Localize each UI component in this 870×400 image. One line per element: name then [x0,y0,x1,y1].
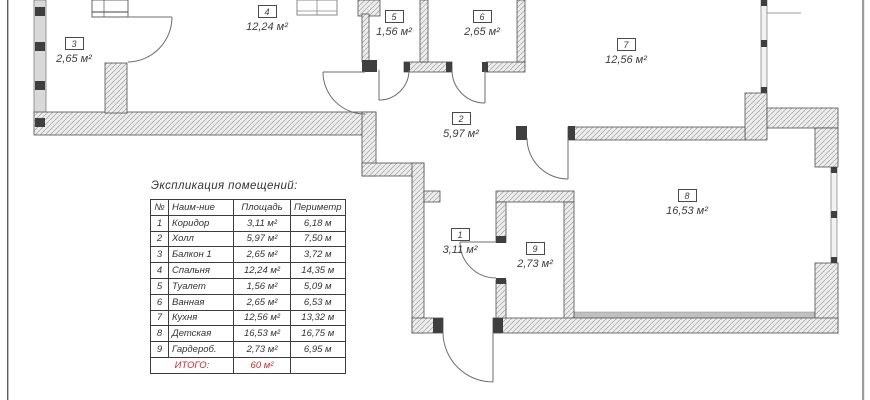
room-area-text: 1,56 м² [344,27,444,38]
cell-num: 4 [151,263,169,279]
room-label-3: 3 2,65 м² [24,35,124,65]
cell-num: 1 [151,215,169,231]
floor-plan-sheet: 1 3,11 м² 2 5,97 м² 3 2,65 м² 4 12,24 м²… [0,0,870,400]
cell-perimeter: 14,35 м [291,263,346,279]
cell-name: Коридор [169,215,234,231]
table-row: 5 Туалет 1,56 м² 5,09 м [151,278,346,294]
cell-perimeter: 6,53 м [291,294,346,310]
table-row: 7 Кухня 12,56 м² 13,32 м [151,310,346,326]
room-number-box: 3 [65,37,84,50]
cell-name: Балкон 1 [169,247,234,263]
cell-name: Гардероб. [169,342,234,358]
explication-table: № Наим-ние Площадь Периметр 1 Коридор 3,… [150,199,346,374]
cell-perimeter: 13,32 м [291,310,346,326]
cell-area: 12,24 м² [234,263,291,279]
cell-num: 8 [151,326,169,342]
explication-title: Экспликация помещений: [151,180,346,192]
cell-area: 2,73 м² [234,342,291,358]
cell-perimeter: 6,18 м [291,215,346,231]
table-row: 1 Коридор 3,11 м² 6,18 м [151,215,346,231]
room-area-text: 5,97 м² [411,129,511,140]
cell-perimeter: 7,50 м [291,231,346,247]
room-number-box: 4 [258,5,277,18]
cell-perimeter: 6,95 м [291,342,346,358]
table-row: 9 Гардероб. 2,73 м² 6,95 м [151,342,346,358]
room-label-4: 4 12,24 м² [217,3,317,33]
room-number-box: 8 [678,189,697,202]
cell-name: Детская [169,326,234,342]
table-header-row: № Наим-ние Площадь Периметр [151,200,346,216]
table-row: 8 Детская 16,53 м² 16,75 м [151,326,346,342]
room-label-2: 2 5,97 м² [411,110,511,140]
room-label-5: 5 1,56 м² [344,8,444,38]
room-number-box: 7 [617,38,636,51]
floor-plan-drawing [0,0,870,400]
cell-area: 16,53 м² [234,326,291,342]
table-total-row: ИТОГО: 60 м² [151,357,346,373]
cell-name: Ванная [169,294,234,310]
cell-area: 5,97 м² [234,231,291,247]
cell-num: 6 [151,294,169,310]
table-row: 4 Спальня 12,24 м² 14,35 м [151,263,346,279]
cell-perimeter: 5,09 м [291,278,346,294]
room-number-box: 5 [385,10,404,23]
room-number-box: 1 [451,228,470,241]
table-row: 3 Балкон 1 2,65 м² 3,72 м [151,247,346,263]
table-row: 2 Холл 5,97 м² 7,50 м [151,231,346,247]
room-label-7: 7 12,56 м² [576,36,676,66]
cell-name: Кухня [169,310,234,326]
header-area: Площадь [234,200,291,216]
total-label: ИТОГО: [151,357,234,373]
cell-name: Холл [169,231,234,247]
room-number-box: 6 [473,10,492,23]
cell-area: 3,11 м² [234,215,291,231]
cell-num: 3 [151,247,169,263]
cell-area: 1,56 м² [234,278,291,294]
total-area: 60 м² [234,357,291,373]
cell-num: 9 [151,342,169,358]
explication-block: Экспликация помещений: № Наим-ние Площад… [150,180,346,374]
header-name: Наим-ние [169,200,234,216]
room-number-box: 2 [452,112,471,125]
room-area-text: 2,73 м² [485,259,585,270]
room-area-text: 12,56 м² [576,55,676,66]
room-area-text: 12,24 м² [217,22,317,33]
cell-name: Туалет [169,278,234,294]
cell-area: 12,56 м² [234,310,291,326]
cell-area: 2,65 м² [234,294,291,310]
header-num: № [151,200,169,216]
room-label-6: 6 2,65 м² [432,8,532,38]
table-row: 6 Ванная 2,65 м² 6,53 м [151,294,346,310]
cell-area: 2,65 м² [234,247,291,263]
room-area-text: 2,65 м² [432,27,532,38]
room-label-9: 9 2,73 м² [485,240,585,270]
cell-perimeter: 3,72 м [291,247,346,263]
room-number-box: 9 [526,242,545,255]
header-perimeter: Периметр [291,200,346,216]
cell-perimeter: 16,75 м [291,326,346,342]
cell-num: 7 [151,310,169,326]
cell-name: Спальня [169,263,234,279]
cell-num: 5 [151,278,169,294]
room-area-text: 16,53 м² [637,206,737,217]
room-area-text: 2,65 м² [24,54,124,65]
room-label-8: 8 16,53 м² [637,187,737,217]
total-perimeter-empty [291,357,346,373]
cell-num: 2 [151,231,169,247]
